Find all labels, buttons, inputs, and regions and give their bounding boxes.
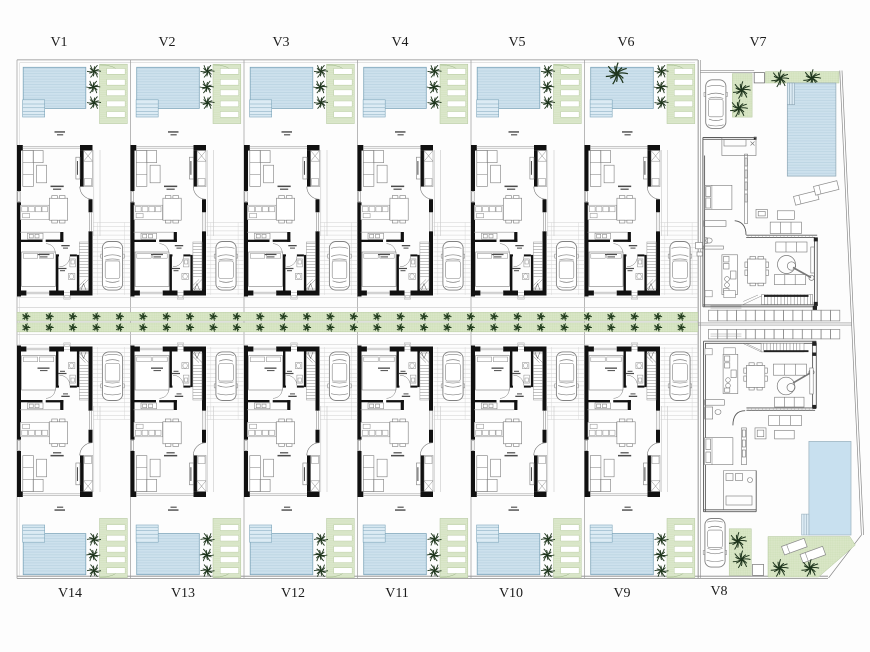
svg-text:V1: V1: [50, 35, 67, 50]
svg-text:V5: V5: [508, 35, 525, 50]
svg-text:V12: V12: [281, 586, 305, 601]
svg-text:V2: V2: [158, 35, 175, 50]
svg-text:V8: V8: [710, 584, 727, 599]
svg-text:V14: V14: [58, 586, 82, 601]
svg-text:V10: V10: [499, 586, 523, 601]
svg-text:V7: V7: [749, 35, 766, 50]
svg-text:V6: V6: [617, 35, 634, 50]
svg-text:V3: V3: [272, 35, 289, 50]
svg-text:V4: V4: [391, 35, 408, 50]
svg-text:V11: V11: [385, 586, 409, 601]
svg-text:V13: V13: [171, 586, 195, 601]
svg-text:V9: V9: [613, 586, 630, 601]
